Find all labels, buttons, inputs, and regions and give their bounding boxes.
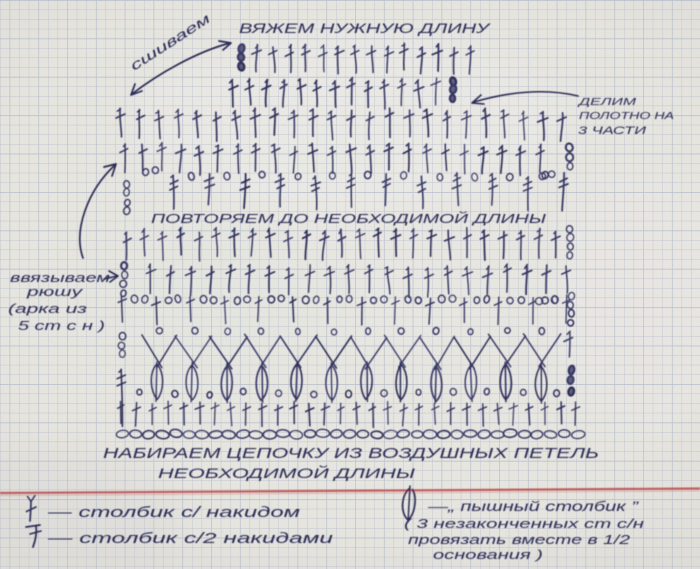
svg-text:провязать вместе в 1/2: провязать вместе в 1/2 bbox=[408, 533, 630, 547]
svg-text:— столбик с/2 накидами: — столбик с/2 накидами bbox=[46, 531, 333, 547]
svg-text:5 ст с н ): 5 ст с н ) bbox=[18, 318, 105, 333]
svg-text:НЕОБХОДИМОЙ ДЛИНЫ: НЕОБХОДИМОЙ ДЛИНЫ bbox=[158, 464, 416, 481]
svg-text:ВЯЖЕМ НУЖНУЮ ДЛИНУ: ВЯЖЕМ НУЖНУЮ ДЛИНУ bbox=[239, 21, 491, 36]
svg-text:ДЕЛИМ: ДЕЛИМ bbox=[577, 96, 636, 108]
svg-text:рюшу: рюшу bbox=[25, 284, 84, 299]
svg-text:3 ЧАСТИ: 3 ЧАСТИ bbox=[578, 125, 646, 137]
svg-text:(арка из: (арка из bbox=[8, 301, 87, 316]
svg-text:ПОВТОРЯЕМ ДО НЕОБХОДИМОЙ ДЛ: ПОВТОРЯЕМ ДО НЕОБХОДИМОЙ ДЛИНЫ bbox=[151, 210, 546, 226]
svg-text:основания ): основания ) bbox=[433, 548, 543, 562]
svg-text:( 3 незаконченных ст с/н: ( 3 незаконченных ст с/н bbox=[404, 517, 644, 531]
svg-text:НАБИРАЕМ ЦЕПОЧКУ ИЗ ВОЗДУШН: НАБИРАЕМ ЦЕПОЧКУ ИЗ ВОЗДУШНЫХ ПЕТЕЛЬ bbox=[103, 446, 599, 462]
svg-text:—„ пышный столбик ”: —„ пышный столбик ” bbox=[427, 499, 639, 514]
svg-text:— столбик с/ накидом: — столбик с/ накидом bbox=[46, 505, 300, 521]
svg-text:ПОЛОТНО НА: ПОЛОТНО НА bbox=[579, 110, 674, 122]
svg-text:ввязываем: ввязываем bbox=[10, 270, 110, 285]
